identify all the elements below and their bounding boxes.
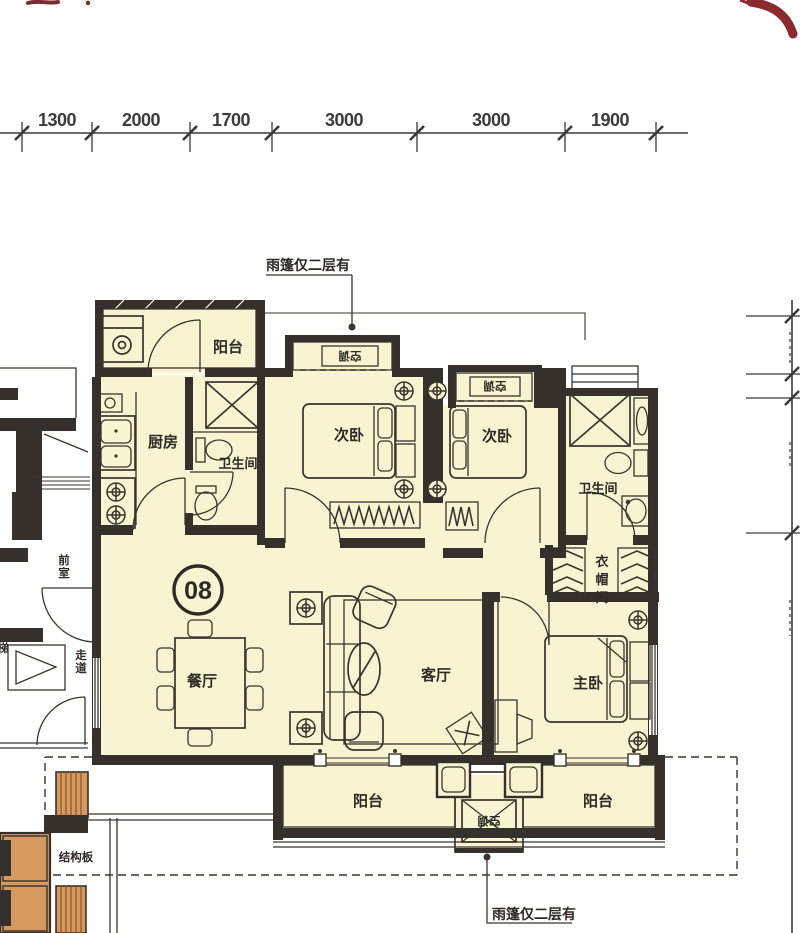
label-kitchen: 厨房 — [148, 433, 178, 451]
canopy-note-top-group: 雨篷仅二层有 — [266, 257, 356, 331]
label-anteroom: 前 室 — [58, 553, 70, 580]
floor-plan-page: 1300 2000 1700 3000 3000 1900 — [0, 0, 800, 933]
stair-cells — [0, 833, 50, 933]
label-bedroom-left: 次卧 — [334, 426, 364, 444]
door-arc-corridor — [37, 697, 85, 745]
label-balcony-top: 阳台 — [213, 338, 243, 356]
stair-hatch-upper — [56, 772, 88, 818]
svg-text:前: 前 — [58, 553, 70, 567]
top-dimension-labels: 1300 2000 1700 3000 3000 1900 — [38, 110, 630, 130]
dim-1700: 1700 — [212, 110, 251, 130]
room-fills — [97, 303, 657, 849]
label-dining: 餐厅 — [187, 672, 217, 690]
stair-hatch-lower — [56, 886, 86, 933]
label-balcony-bl: 阳台 — [353, 792, 383, 810]
label-bath-right: 卫生间 — [578, 481, 617, 496]
svg-text:衣: 衣 — [595, 554, 608, 569]
label-bedroom-mid: 次卧 — [482, 427, 512, 445]
right-dimension-line — [746, 300, 800, 933]
elevator-symbol — [8, 645, 65, 690]
label-stair-partial: 梯 — [0, 641, 9, 655]
logo-stroke-top-right — [740, 0, 793, 34]
ac-label-bay-mid: 空调 — [484, 379, 507, 393]
floorplan-canvas: 1300 2000 1700 3000 3000 1900 — [0, 0, 800, 933]
canopy-note-bottom: 雨篷仅二层有 — [492, 906, 576, 922]
left-common-area — [0, 368, 90, 690]
svg-text:间: 间 — [595, 590, 608, 605]
ac-label-bay-left: 空调 — [339, 349, 362, 363]
dim-3000-a: 3000 — [325, 110, 364, 130]
window-bay-bath-right — [572, 366, 638, 390]
door-arc-entry — [42, 588, 96, 642]
label-cloakroom: 衣 帽 间 — [595, 554, 608, 605]
dim-1900: 1900 — [591, 110, 630, 130]
svg-text:走: 走 — [74, 648, 87, 662]
dim-2000: 2000 — [122, 110, 161, 130]
label-master: 主卧 — [573, 674, 603, 692]
label-balcony-br: 阳台 — [583, 792, 613, 810]
ac-label-platform: 空调 — [478, 814, 501, 828]
canopy-note-top: 雨篷仅二层有 — [266, 257, 350, 273]
dim-3000-b: 3000 — [472, 110, 511, 130]
unit-number: 08 — [184, 577, 212, 605]
svg-text:道: 道 — [75, 661, 87, 675]
label-corridor: 走 道 — [74, 648, 87, 675]
logo-stroke-top-left — [28, 1, 90, 5]
label-living: 客厅 — [420, 666, 451, 684]
label-bath-top: 卫生间 — [218, 456, 257, 471]
dim-1300: 1300 — [38, 110, 77, 130]
label-structural-slab: 结构板 — [58, 850, 94, 864]
svg-text:帽: 帽 — [595, 572, 608, 587]
svg-text:室: 室 — [58, 566, 70, 580]
canopy-note-bottom-group: 雨篷仅二层有 — [484, 854, 577, 924]
